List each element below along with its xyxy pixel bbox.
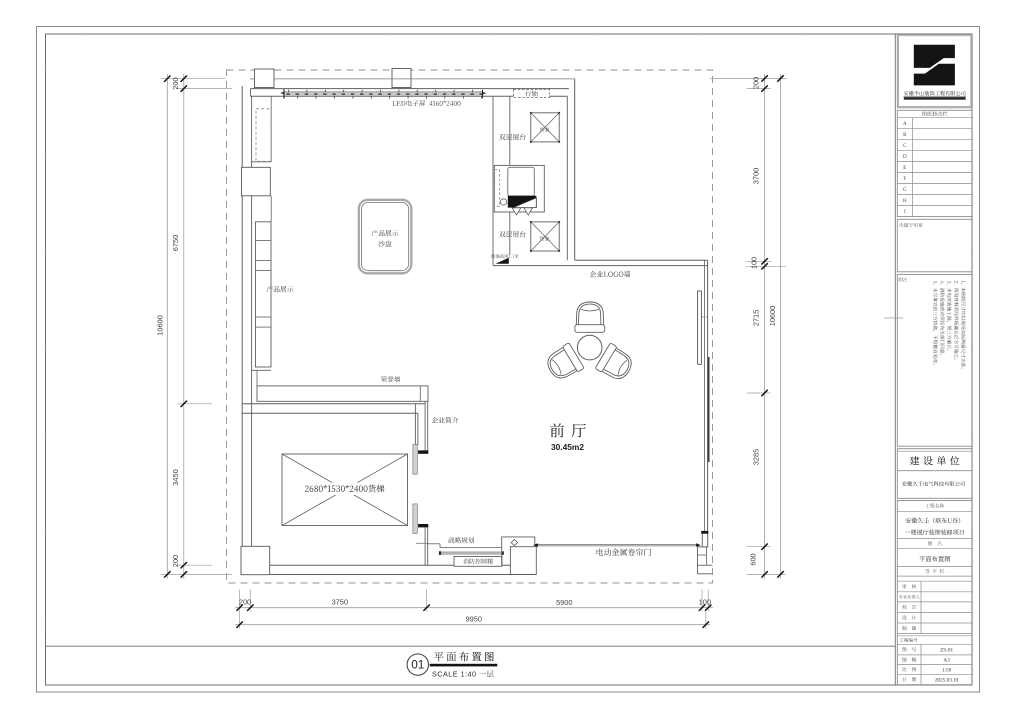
svg-text:9950: 9950 [466, 614, 482, 623]
svg-text:A3: A3 [943, 658, 950, 664]
svg-text:E: E [903, 166, 906, 171]
svg-text:100: 100 [699, 597, 711, 606]
svg-text:3450: 3450 [171, 469, 180, 485]
svg-text:6750: 6750 [171, 235, 180, 251]
svg-text:600: 600 [749, 553, 758, 565]
svg-text:5900: 5900 [556, 598, 572, 607]
svg-text:H: H [903, 199, 907, 204]
svg-text:G: G [903, 188, 907, 193]
svg-text:100: 100 [750, 257, 759, 269]
svg-text:SCALE 1:40: SCALE 1:40 [432, 670, 477, 679]
svg-text:3700: 3700 [752, 168, 761, 184]
svg-text:F: F [903, 177, 906, 182]
svg-text:2715: 2715 [752, 310, 761, 326]
svg-text:10600: 10600 [156, 315, 165, 336]
svg-text:200: 200 [171, 77, 180, 89]
svg-text:1:50: 1:50 [942, 667, 952, 673]
svg-text:3285: 3285 [752, 449, 761, 465]
svg-text:01: 01 [411, 658, 424, 672]
svg-text:D: D [903, 155, 907, 160]
svg-text:3750: 3750 [332, 597, 348, 606]
svg-text:ZS-01: ZS-01 [940, 648, 953, 654]
svg-text:200: 200 [752, 77, 761, 89]
svg-text:200: 200 [171, 555, 180, 567]
svg-text:30.45m2: 30.45m2 [551, 442, 584, 452]
svg-text:2025.03.10: 2025.03.10 [935, 678, 959, 684]
svg-text:10600: 10600 [768, 306, 777, 327]
svg-text:A: A [903, 122, 907, 127]
svg-text:200: 200 [239, 597, 251, 606]
